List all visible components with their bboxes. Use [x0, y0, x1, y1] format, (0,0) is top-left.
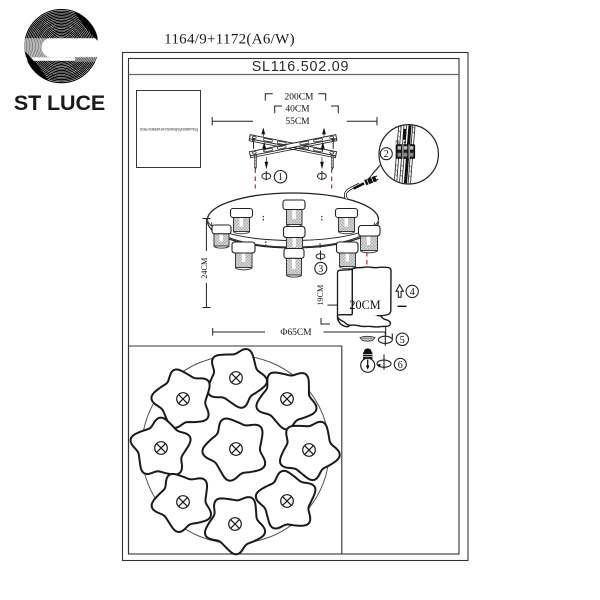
svg-text:55CM: 55CM: [285, 117, 310, 127]
svg-text:2: 2: [384, 149, 389, 160]
svg-text:3: 3: [318, 264, 323, 275]
svg-text:20CM: 20CM: [349, 298, 380, 312]
svg-text:6: 6: [398, 360, 403, 371]
svg-text:19CM: 19CM: [316, 284, 325, 306]
svg-text:1: 1: [278, 172, 283, 183]
svg-text:200CM: 200CM: [284, 93, 314, 103]
svg-text:Φ65CM: Φ65CM: [280, 328, 312, 338]
svg-text:Df.Stace-2/CeM&E&Pr-3/4x7-25x2: Df.Stace-2/CeM&E&Pr-3/4x7-25x26/OnIyProg…: [140, 128, 198, 132]
svg-text:5: 5: [400, 335, 405, 346]
svg-text:40CM: 40CM: [285, 105, 310, 115]
svg-text:24CM: 24CM: [200, 257, 209, 279]
svg-text:ST LUCE: ST LUCE: [14, 91, 105, 115]
svg-text:4: 4: [410, 287, 415, 298]
svg-text:1164/9+1172(A6/W): 1164/9+1172(A6/W): [164, 32, 295, 48]
svg-text:SL116.502.09: SL116.502.09: [252, 59, 350, 75]
